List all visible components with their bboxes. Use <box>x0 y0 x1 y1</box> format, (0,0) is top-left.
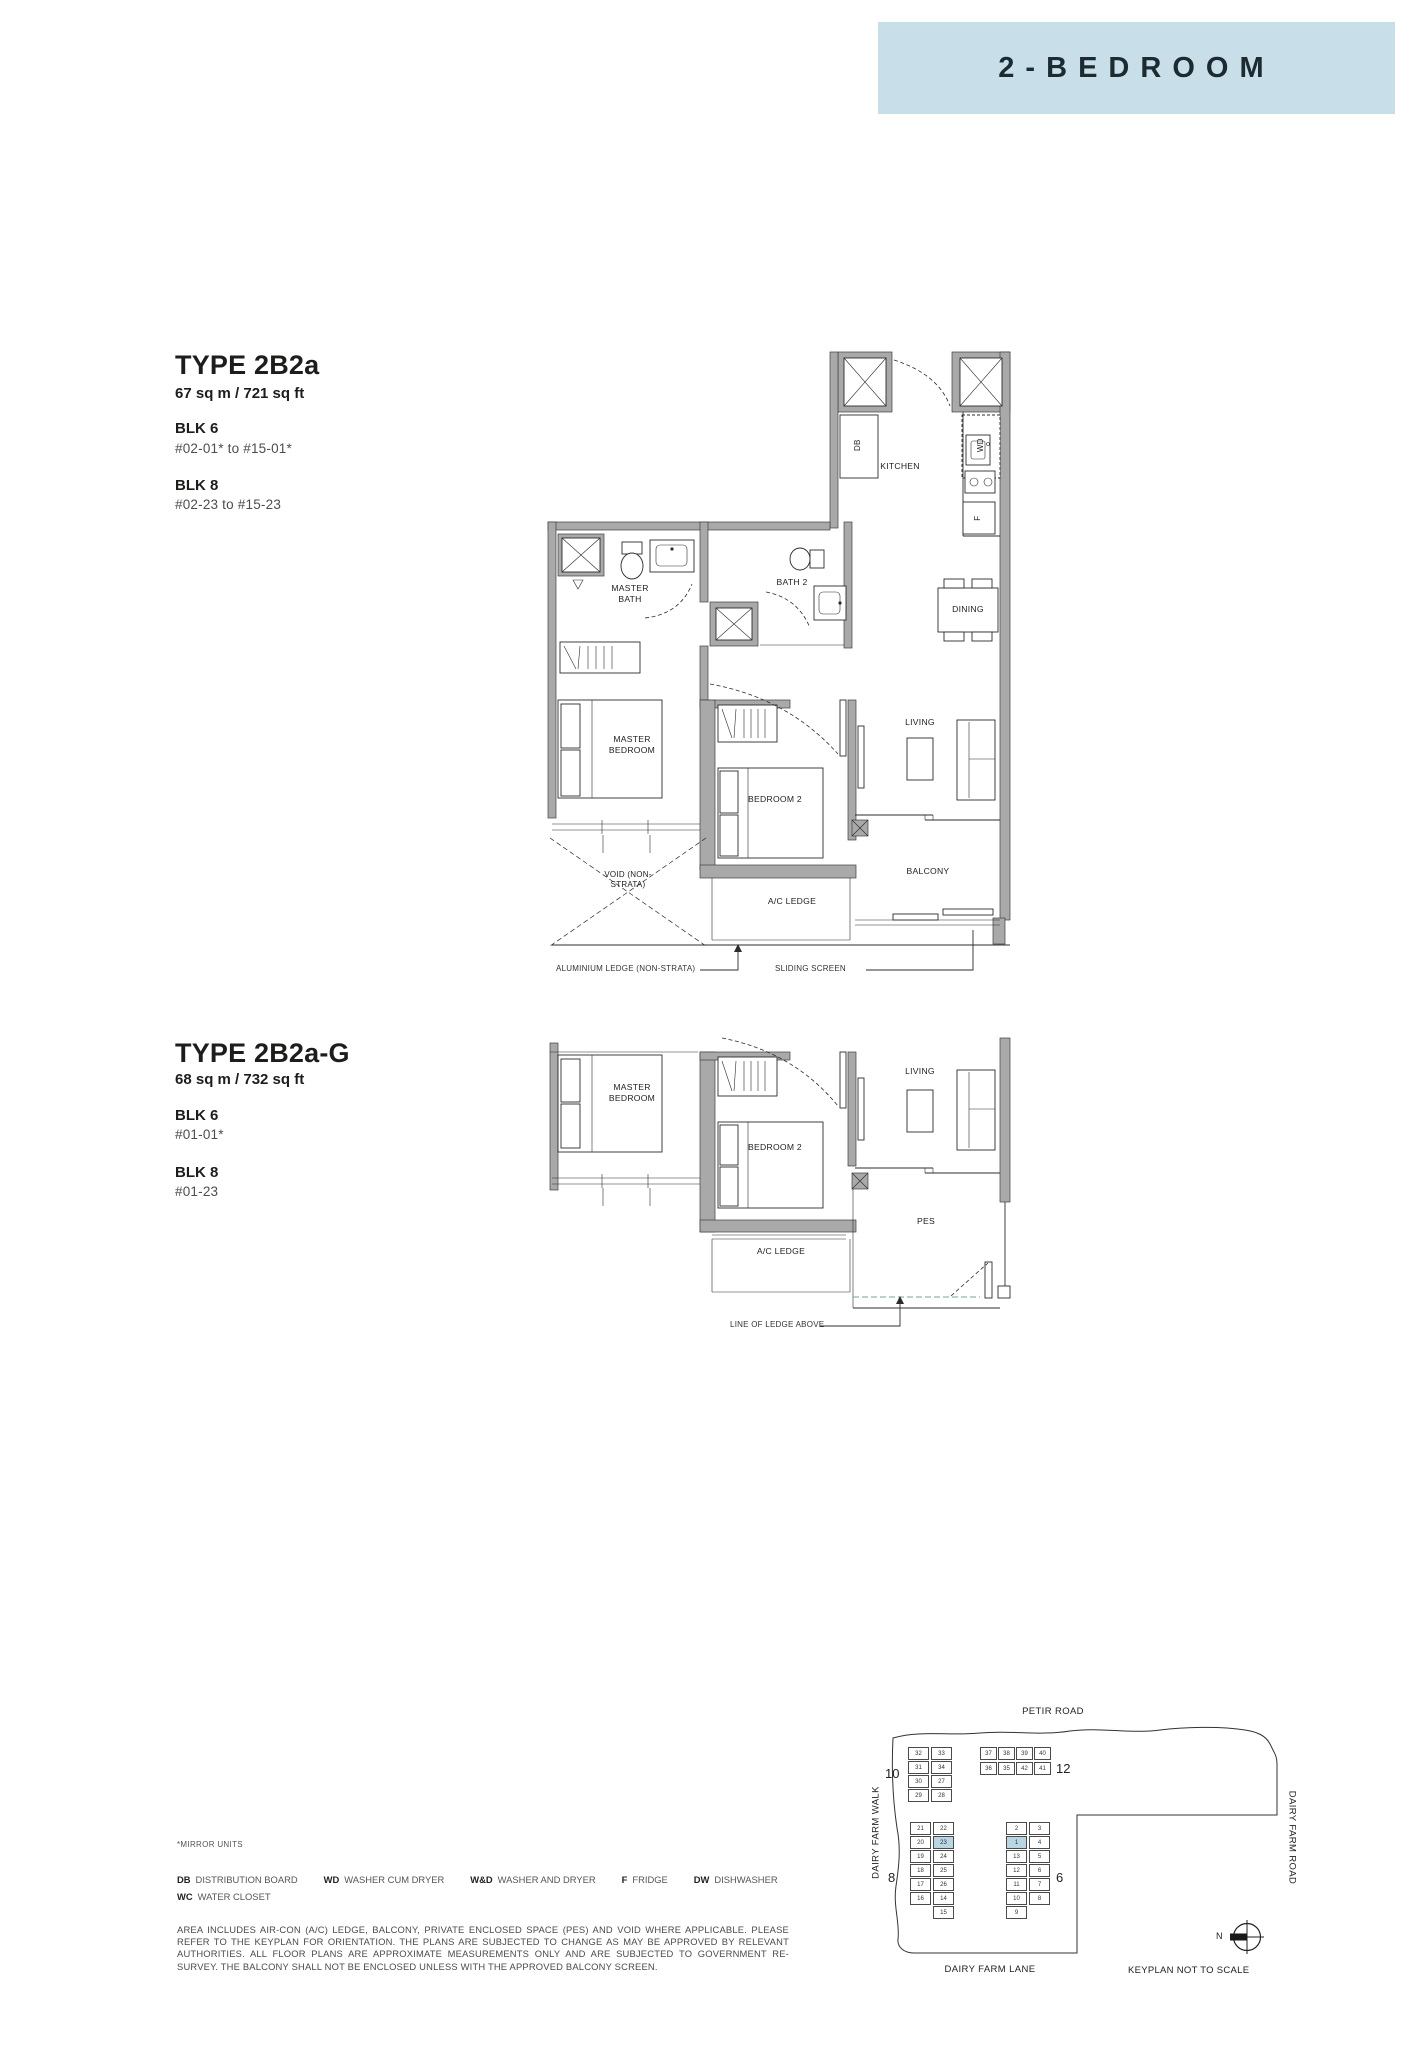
keyplan-unit-cell: 17 <box>910 1878 931 1891</box>
keyplan-unit-cell: 39 <box>1016 1747 1033 1760</box>
north-compass-icon <box>1230 1920 1264 1954</box>
balcony-railing <box>855 909 1000 925</box>
legend-item: DWDISHWASHER <box>694 1874 778 1885</box>
keyplan-unit-cell: 11 <box>1006 1878 1027 1891</box>
keyplan-unit-cell: 22 <box>933 1822 954 1835</box>
ac-ledge-outline <box>712 878 850 940</box>
legend-item: W&DWASHER AND DRYER <box>470 1874 595 1885</box>
annotation-line-of-ledge: LINE OF LEDGE ABOVE <box>730 1320 824 1329</box>
keyplan-unit-cell: 29 <box>908 1789 929 1802</box>
annotation-arrow <box>820 1296 904 1326</box>
bedroom2-wardrobe <box>718 705 777 742</box>
mirror-units-note: *MIRROR UNITS <box>177 1840 243 1849</box>
road-label-dairy-farm-lane: DAIRY FARM LANE <box>930 1964 1050 1975</box>
room-label-balcony: BALCONY <box>893 866 963 877</box>
keyplan-unit-cell: 4 <box>1029 1836 1050 1849</box>
keyplan-unit-cell: 25 <box>933 1864 954 1877</box>
room-label-dining: DINING <box>928 604 1008 615</box>
road-label-dairy-farm-walk: DAIRY FARM WALK <box>871 1773 882 1893</box>
master-window <box>552 1174 700 1206</box>
bedroom2-wardrobe <box>718 1057 777 1096</box>
block-label-6: 6 <box>1056 1870 1063 1885</box>
bath2-fixtures <box>760 548 846 645</box>
disclaimer-text: AREA INCLUDES AIR-CON (A/C) LEDGE, BALCO… <box>177 1924 789 1973</box>
pes-boundary <box>853 1189 1010 1308</box>
keyplan-unit-cell: 12 <box>1006 1864 1027 1877</box>
north-label: N <box>1216 1931 1223 1941</box>
room-label-void: VOID (NON-STRATA) <box>603 870 653 891</box>
keyplan-unit-cell: 10 <box>1006 1892 1027 1905</box>
annotation-aluminium-ledge: ALUMINIUM LEDGE (NON-STRATA) <box>556 964 695 973</box>
legend-row-2: WCWATER CLOSET <box>177 1891 297 1902</box>
keyplan-scale-note: KEYPLAN NOT TO SCALE <box>1128 1965 1249 1976</box>
keyplan-unit-cell: 37 <box>980 1747 997 1760</box>
block-label-8: 8 <box>888 1870 895 1885</box>
keyplan-unit-cell: 9 <box>1006 1906 1027 1919</box>
type2-area: 68 sq m / 732 sq ft <box>175 1071 304 1088</box>
type1-blk6-name: BLK 6 <box>175 420 218 437</box>
keyplan-unit-cell: 27 <box>931 1775 952 1788</box>
keyplan-unit-cell: 5 <box>1029 1850 1050 1863</box>
type1-blk8-name: BLK 8 <box>175 477 218 494</box>
keyplan-unit-cell: 8 <box>1029 1892 1050 1905</box>
keyplan-unit-cell: 1 <box>1006 1836 1027 1849</box>
appliance-label-fridge: F <box>973 504 983 532</box>
keyplan-unit-cell: 18 <box>910 1864 931 1877</box>
bedroom2-bed <box>718 768 823 858</box>
room-label-living: LIVING <box>885 717 955 728</box>
keyplan-blk12-row1: 37383940 <box>980 1747 1051 1760</box>
type1-blk8-units: #02-23 to #15-23 <box>175 497 281 512</box>
bedroom2-bed <box>718 1122 823 1208</box>
keyplan-unit-cell: 33 <box>931 1747 952 1760</box>
keyplan-unit-cell: 34 <box>931 1761 952 1774</box>
living-furniture <box>858 720 995 800</box>
room-label-bedroom2: BEDROOM 2 <box>748 794 802 805</box>
bedroom2-sliding-window <box>712 1235 846 1239</box>
keyplan-unit-cell: 30 <box>908 1775 929 1788</box>
entry-door-arc <box>894 360 950 406</box>
keyplan-unit-cell: 3 <box>1029 1822 1050 1835</box>
keyplan-unit-cell: 20 <box>910 1836 931 1849</box>
appliance-label-wd: WD <box>976 430 986 460</box>
keyplan-unit-cell: 6 <box>1029 1864 1050 1877</box>
room-label-kitchen: KITCHEN <box>860 461 940 472</box>
keyplan-blk6-col2: 345678 <box>1029 1822 1050 1905</box>
keyplan: PETIR ROAD DAIRY FARM WALK DAIRY FARM RO… <box>860 1690 1330 2020</box>
keyplan-unit-cell: 28 <box>931 1789 952 1802</box>
legend-item: WCWATER CLOSET <box>177 1891 271 1902</box>
keyplan-unit-cell: 16 <box>910 1892 931 1905</box>
keyplan-unit-cell: 7 <box>1029 1878 1050 1891</box>
keyplan-unit-cell: 2 <box>1006 1822 1027 1835</box>
keyplan-unit-cell: 15 <box>933 1906 954 1919</box>
keyplan-unit-cell: 13 <box>1006 1850 1027 1863</box>
keyplan-unit-cell: 36 <box>980 1762 997 1775</box>
type2-blk6-name: BLK 6 <box>175 1107 218 1124</box>
keyplan-blk10-col1: 32313029 <box>908 1747 929 1802</box>
keyplan-unit-cell: 38 <box>998 1747 1015 1760</box>
room-label-master-bedroom-2: MASTER BEDROOM <box>605 1082 659 1104</box>
legend-item: WDWASHER CUM DRYER <box>324 1874 445 1885</box>
type1-area: 67 sq m / 721 sq ft <box>175 385 304 402</box>
keyplan-blk8-col1: 212019181716 <box>910 1822 931 1905</box>
keyplan-unit-cell: 32 <box>908 1747 929 1760</box>
keyplan-unit-cell: 31 <box>908 1761 929 1774</box>
room-label-ac-ledge: A/C LEDGE <box>757 896 827 907</box>
legend-item: FFRIDGE <box>622 1874 668 1885</box>
legend-item: DBDISTRIBUTION BOARD <box>177 1874 298 1885</box>
keyplan-unit-cell: 14 <box>933 1892 954 1905</box>
brochure-page: 2-BEDROOM TYPE 2B2a 67 sq m / 721 sq ft … <box>0 0 1417 2067</box>
annotation-sliding-screen: SLIDING SCREEN <box>775 964 846 973</box>
keyplan-unit-cell: 21 <box>910 1822 931 1835</box>
room-label-pes: PES <box>891 1216 961 1227</box>
room-label-master-bath: MASTER BATH <box>608 583 652 605</box>
keyplan-unit-cell: 26 <box>933 1878 954 1891</box>
balcony-sliding-door <box>855 815 1000 820</box>
keyplan-unit-cell: 23 <box>933 1836 954 1849</box>
keyplan-blk6-col1: 21131211109 <box>1006 1822 1027 1919</box>
keyplan-unit-cell: 35 <box>998 1762 1015 1775</box>
master-window <box>552 820 700 853</box>
keyplan-blk12-row2: 36354241 <box>980 1762 1051 1775</box>
keyplan-unit-cell: 41 <box>1034 1762 1051 1775</box>
type2-blk8-units: #01-23 <box>175 1184 218 1199</box>
type1-title: TYPE 2B2a <box>175 350 319 381</box>
keyplan-unit-cell: 19 <box>910 1850 931 1863</box>
keyplan-unit-cell: 42 <box>1016 1762 1033 1775</box>
keyplan-unit-cell: 24 <box>933 1850 954 1863</box>
room-label-ac-ledge-2: A/C LEDGE <box>746 1246 816 1257</box>
block-label-10: 10 <box>885 1766 899 1781</box>
room-label-living-2: LIVING <box>885 1066 955 1077</box>
road-label-dairy-farm-road: DAIRY FARM ROAD <box>1287 1778 1298 1898</box>
appliance-label-db: DB <box>853 430 863 460</box>
road-label-petir: PETIR ROAD <box>993 1706 1113 1717</box>
living-sliding-door <box>852 1168 1000 1189</box>
void-cross <box>550 838 706 946</box>
room-label-bedroom2-2: BEDROOM 2 <box>748 1142 802 1153</box>
type1-blk6-units: #02-01* to #15-01* <box>175 441 292 456</box>
block-label-12: 12 <box>1056 1761 1070 1776</box>
legend-row-1: DBDISTRIBUTION BOARDWDWASHER CUM DRYERW&… <box>177 1874 804 1885</box>
section-header: 2-BEDROOM <box>878 22 1395 114</box>
living-furniture <box>858 1070 995 1150</box>
page-title: 2-BEDROOM <box>998 52 1274 85</box>
keyplan-blk8-col2: 22232425261415 <box>933 1822 954 1919</box>
keyplan-blk10-col2: 33342728 <box>931 1747 952 1802</box>
type2-title: TYPE 2B2a-G <box>175 1038 350 1069</box>
keyplan-unit-cell: 40 <box>1034 1747 1051 1760</box>
master-wardrobe <box>560 642 640 673</box>
room-label-bath2: BATH 2 <box>757 577 827 588</box>
type2-blk6-units: #01-01* <box>175 1127 224 1142</box>
type2-blk8-name: BLK 8 <box>175 1164 218 1181</box>
room-label-master-bedroom: MASTER BEDROOM <box>605 734 659 756</box>
